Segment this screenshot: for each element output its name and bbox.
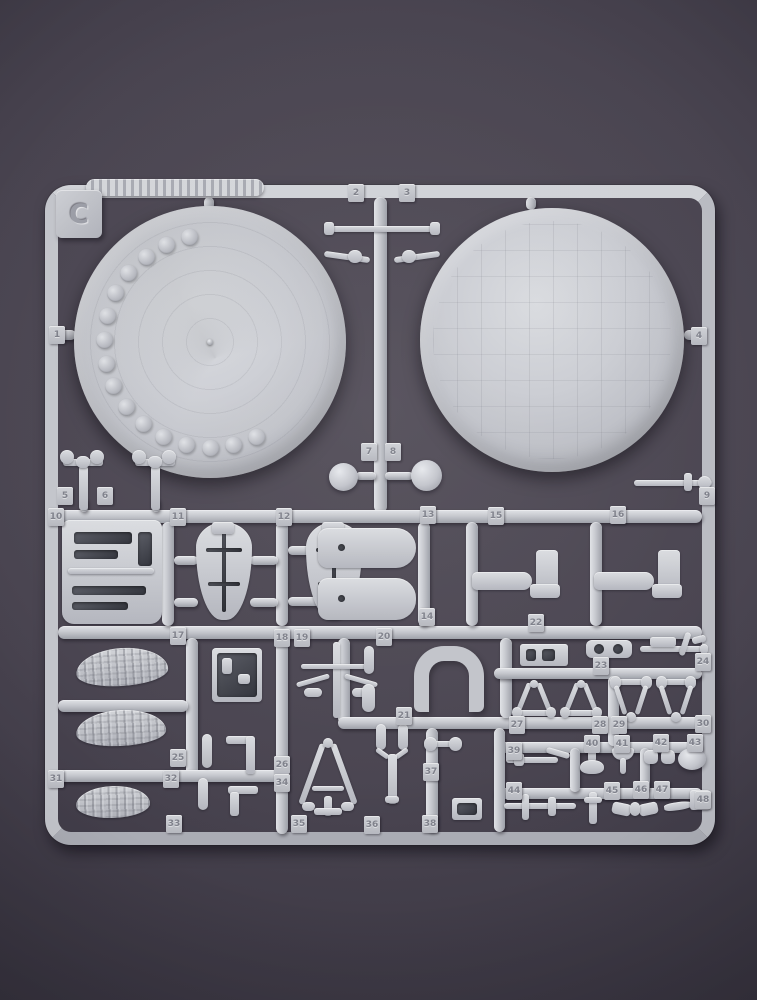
part-detail	[76, 456, 90, 468]
part-number-tag: 43	[687, 734, 703, 752]
part-dumbbell-rod	[424, 734, 462, 754]
part-detail	[151, 466, 160, 510]
part-twin-knob-post-b	[132, 450, 178, 510]
dish-part-large-left	[74, 206, 346, 478]
part-detail	[586, 640, 632, 658]
part-detail	[638, 801, 659, 817]
dish-dimple	[99, 308, 116, 325]
dish-dimple	[105, 378, 122, 395]
part-detail	[457, 803, 477, 815]
part-detail	[222, 530, 226, 612]
part-detail	[238, 674, 250, 684]
part-detail	[162, 450, 176, 464]
part-number-tag: 6	[97, 487, 113, 505]
part-tripod-hanger-b	[656, 676, 696, 722]
part-number-tag: 42	[653, 734, 669, 752]
part-detail	[546, 707, 556, 718]
part-detail	[430, 222, 440, 235]
part-small-cylinders	[352, 646, 388, 716]
part-detail	[613, 644, 623, 654]
part-detail	[580, 760, 604, 774]
part-detail	[72, 586, 146, 595]
molded-text-strip	[86, 179, 264, 196]
part-tall-a-frame	[300, 738, 356, 816]
part-number-tag: 47	[654, 781, 670, 799]
part-number-tag: 46	[633, 781, 649, 799]
part-detail	[362, 684, 375, 712]
part-detail	[333, 642, 340, 718]
runner-rail	[356, 472, 376, 480]
part-number-tag: 3	[399, 184, 415, 202]
part-detail	[296, 673, 330, 687]
part-number-tag: 8	[385, 443, 401, 461]
part-small-box	[452, 798, 484, 822]
part-detail	[394, 251, 440, 263]
runner-rail	[250, 598, 278, 607]
part-number-tag: 31	[48, 770, 64, 788]
part-detail	[74, 532, 132, 544]
part-number-tag: 5	[57, 487, 73, 505]
part-detail	[206, 548, 242, 552]
dish-center-pin	[207, 339, 213, 345]
part-number-tag: 14	[419, 608, 435, 626]
part-detail	[298, 743, 326, 805]
runner-rail	[174, 598, 198, 607]
part-number-tag: 40	[584, 735, 600, 753]
part-detail	[318, 528, 416, 568]
part-detail	[526, 649, 536, 661]
part-detail	[634, 685, 648, 715]
part-detail	[348, 250, 362, 263]
part-detail	[626, 712, 636, 722]
part-detail	[74, 550, 118, 559]
part-detail	[644, 750, 658, 764]
part-number-tag: 33	[166, 815, 182, 833]
part-detail	[679, 685, 693, 715]
part-number-tag: 16	[610, 506, 626, 524]
part-yoke	[372, 724, 412, 810]
model-kit-sprue-photo: C 12345678910111213141516171819202122232…	[0, 0, 757, 1000]
part-bracket-a	[472, 550, 560, 602]
part-detail	[385, 796, 399, 803]
part-detail	[324, 251, 370, 263]
part-detail	[212, 522, 234, 534]
part-number-tag: 29	[611, 716, 627, 734]
part-number-tag: 24	[695, 653, 711, 671]
part-detail	[594, 572, 654, 590]
part-number-tag: 38	[422, 815, 438, 833]
part-detail	[222, 658, 232, 674]
part-detail	[584, 797, 602, 803]
part-detail	[530, 680, 538, 688]
part-detail	[652, 584, 682, 598]
part-number-tag: 27	[509, 716, 525, 734]
part-a-frame-strut-b	[560, 680, 602, 720]
part-hull-plate-b	[318, 578, 416, 620]
part-detail	[312, 786, 344, 791]
gate-letter: C	[69, 199, 89, 230]
gate-letter-tab: C	[56, 190, 102, 238]
part-number-tag: 1	[49, 326, 65, 344]
part-horseshoe-plate	[414, 646, 484, 712]
part-detail	[684, 473, 692, 491]
part-detail	[678, 632, 691, 657]
part-detail	[68, 568, 154, 574]
part-tee-post	[584, 792, 602, 824]
part-number-tag: 15	[488, 507, 504, 525]
dish-dimple	[135, 416, 152, 433]
part-number-tag: 28	[592, 716, 608, 734]
part-detail	[630, 802, 640, 816]
runner-rail	[276, 638, 288, 834]
part-number-tag: 32	[163, 770, 179, 788]
dish-dimple	[248, 429, 265, 446]
part-open-box	[212, 648, 262, 702]
part-detail	[341, 802, 354, 811]
part-detail	[198, 778, 208, 810]
part-detail	[323, 738, 333, 748]
part-detail	[376, 724, 386, 750]
part-detail	[318, 578, 416, 620]
runner-rail	[162, 522, 174, 626]
part-detail	[330, 743, 358, 805]
part-number-tag: 9	[699, 487, 715, 505]
part-number-tag: 20	[376, 628, 392, 646]
dish-part-large-right	[420, 208, 684, 472]
dish-dimple	[181, 229, 198, 246]
part-hull-plate-a	[318, 528, 416, 568]
part-detail	[671, 712, 681, 722]
dish-dimple	[98, 356, 115, 373]
part-detail	[613, 685, 627, 715]
part-pipe-elbows	[196, 734, 268, 816]
part-detail	[402, 250, 416, 263]
part-number-tag: 17	[170, 627, 186, 645]
part-winged-mount	[612, 796, 658, 822]
part-number-tag: 12	[276, 508, 292, 526]
dish-dimple	[118, 399, 135, 416]
part-detail	[72, 602, 128, 610]
runner-rail	[276, 522, 288, 626]
part-number-tag: 4	[691, 327, 707, 345]
dish-dimple	[225, 437, 242, 454]
part-detail	[208, 582, 240, 586]
part-detail	[202, 734, 212, 768]
part-number-tag: 44	[506, 782, 522, 800]
part-number-tag: 34	[274, 774, 290, 792]
dish-dimple	[120, 265, 137, 282]
part-greebled-panel-a	[75, 645, 169, 689]
part-detail	[364, 646, 374, 674]
part-cockpit-hull	[62, 520, 162, 624]
dish-dimple	[178, 437, 195, 454]
dish-dimple	[202, 440, 219, 457]
part-dome-disc	[329, 463, 358, 491]
part-detail	[246, 736, 255, 774]
part-detail	[504, 803, 576, 809]
part-nacelle-half-a	[196, 522, 252, 620]
part-detail	[75, 645, 169, 689]
part-detail	[542, 649, 555, 661]
part-number-tag: 19	[294, 629, 310, 647]
part-detail	[548, 797, 556, 816]
runner-rail	[385, 472, 413, 480]
part-detail	[338, 544, 345, 551]
part-detail-box	[520, 644, 568, 668]
part-number-tag: 7	[361, 443, 377, 461]
part-detail	[611, 801, 632, 817]
part-detail	[75, 708, 167, 749]
part-detail	[661, 750, 675, 764]
part-number-tag: 39	[506, 742, 522, 760]
part-number-tag: 26	[274, 756, 290, 774]
dish-dimple	[107, 285, 124, 302]
part-antenna-assembly	[322, 212, 442, 284]
part-greebled-panel-b	[75, 708, 167, 749]
part-detail	[75, 785, 150, 820]
part-detail	[338, 595, 345, 602]
part-number-tag: 13	[420, 506, 436, 524]
part-detail	[530, 584, 560, 598]
part-number-tag: 35	[291, 815, 307, 833]
part-number-tag: 2	[348, 184, 364, 202]
part-detail	[424, 737, 437, 751]
part-detail	[132, 450, 146, 464]
part-detail	[398, 724, 408, 750]
part-detail	[472, 572, 532, 590]
part-number-tag: 11	[170, 508, 186, 526]
runner-rail	[250, 556, 278, 565]
dish-dimple	[155, 429, 172, 446]
part-detail	[138, 532, 152, 566]
part-number-tag: 41	[614, 735, 630, 753]
part-bracket-b	[594, 550, 682, 602]
part-detail	[314, 808, 342, 815]
part-number-tag: 22	[528, 614, 544, 632]
part-detail	[230, 792, 239, 816]
part-detail	[620, 758, 626, 774]
part-a-frame-strut-a	[512, 680, 556, 720]
part-number-tag: 45	[604, 782, 620, 800]
part-detail	[522, 794, 529, 820]
part-detail	[60, 450, 74, 464]
part-number-tag: 30	[695, 715, 711, 733]
part-number-tag: 10	[48, 508, 64, 526]
part-detail	[449, 737, 462, 751]
part-detail	[148, 456, 162, 468]
part-number-tag: 36	[364, 816, 380, 834]
part-number-tag: 18	[274, 629, 290, 647]
part-ball-dome	[411, 460, 442, 491]
part-detail	[90, 450, 104, 464]
part-detail	[594, 644, 604, 654]
part-number-tag: 25	[170, 749, 186, 767]
part-detail	[79, 466, 88, 510]
part-number-tag: 37	[423, 763, 439, 781]
part-detail	[304, 688, 322, 697]
part-detail	[560, 707, 570, 718]
part-number-tag: 48	[695, 791, 711, 809]
runner-rail	[174, 556, 198, 565]
dish-dimple	[158, 237, 175, 254]
part-detail	[650, 637, 676, 647]
part-detail	[332, 226, 432, 232]
part-detail	[324, 222, 334, 235]
dish-dimple	[96, 332, 113, 349]
part-greebled-panel-c	[75, 785, 150, 820]
part-detail	[577, 680, 585, 688]
part-number-tag: 23	[593, 657, 609, 675]
dish-dimple	[138, 249, 155, 266]
part-detail	[658, 685, 672, 715]
part-number-tag: 21	[396, 707, 412, 725]
